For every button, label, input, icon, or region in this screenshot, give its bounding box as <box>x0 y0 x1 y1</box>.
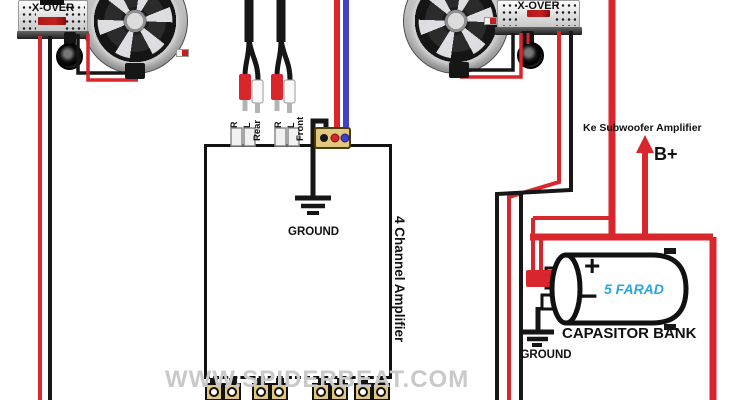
rca-plug-tip <box>243 100 248 111</box>
left-crossover-label: X-OVER <box>18 2 88 14</box>
amp-ground-symbol <box>295 198 331 213</box>
capacitor-ground-label: GROUND <box>518 349 574 361</box>
wiring-diagram: X-OVER X-OVER R L Rear R L Front GROUND … <box>0 0 750 400</box>
rca-plug-tip <box>287 103 292 113</box>
rca-plug-white <box>252 80 263 103</box>
bplus-label: B+ <box>654 144 678 165</box>
jack-front-r <box>275 128 286 146</box>
right-crossover-label: X-OVER <box>497 0 580 12</box>
subwoofer-arrow-head <box>636 135 654 153</box>
watermark: WWW.SPIDERBEAT.COM <box>165 366 469 394</box>
capacitor-foot <box>664 248 676 254</box>
rca-cable-front <box>271 0 295 113</box>
amp-name-label: 4 Channel Amplifier <box>392 216 407 366</box>
left-woofer-terminal <box>125 63 145 79</box>
rca-plug-tip <box>275 100 280 111</box>
capacitor-ground-symbol <box>522 307 554 345</box>
input-rear-l-label: L <box>242 113 252 128</box>
input-front-label: Front <box>295 104 306 141</box>
rca-plug-white <box>284 80 295 103</box>
capacitor-plus-sign: + <box>584 250 600 282</box>
terminal-ground <box>320 134 328 142</box>
rca-plug-red <box>239 74 251 100</box>
amp-input-jacks <box>231 128 299 146</box>
capacitor-end-cap <box>552 255 580 323</box>
jack-rear-r <box>231 128 242 146</box>
power-terminal-block <box>315 128 350 148</box>
capacitor-minus-sign: − <box>580 280 598 314</box>
terminal-remote <box>341 134 349 142</box>
terminal-12v <box>331 134 339 142</box>
right-woofer-terminal <box>449 62 469 78</box>
rca-plug-red <box>271 74 283 100</box>
capacitor-value-label: 5 FARAD <box>604 281 664 297</box>
rca-cable-rear <box>239 0 263 113</box>
input-rear-r-label: R <box>229 113 239 128</box>
amp-ground-label: GROUND <box>288 226 338 238</box>
input-rear-label: Rear <box>252 108 263 141</box>
input-front-r-label: R <box>273 113 283 128</box>
capacitor-bank-label: CAPASITOR BANK <box>562 325 696 342</box>
subwoofer-note-label: Ke Subwoofer Amplifier <box>583 122 702 134</box>
